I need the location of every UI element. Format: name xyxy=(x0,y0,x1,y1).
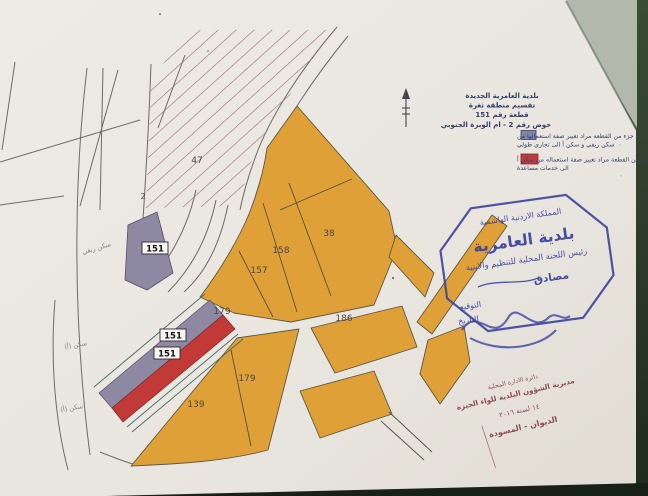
legend-item-1-line-2: سكن ريفي و سكن أ الى تجاري طولي xyxy=(517,140,614,149)
map-sheet-svg: 47 2 157 158 38 179 186 179 139 151 151 … xyxy=(0,0,648,496)
legend-item-1-line-1: جزء من القطعة مراد تغيير صفة استعمالها م… xyxy=(517,133,634,140)
photo-of-cadastral-map: 47 2 157 158 38 179 186 179 139 151 151 … xyxy=(0,0,648,496)
legend-item-2-line-2: الى خدمات مساعدة xyxy=(517,165,569,172)
title-line-2: تقسيم منطقة ثغرة xyxy=(469,102,536,110)
parcel-label-179b: 179 xyxy=(238,374,255,384)
boxed-label-151-gray-parcel: 151 xyxy=(146,245,164,255)
legend-item-2-line-1: جزء من القطعة مراد تغيير صفة استعماله من… xyxy=(517,155,648,164)
parcel-label-158: 158 xyxy=(272,246,289,256)
parcel-label-179a: 179 xyxy=(213,307,230,317)
parcel-label-186: 186 xyxy=(335,314,352,324)
parcel-label-38: 38 xyxy=(323,229,335,239)
parcel-label-139: 139 xyxy=(187,400,204,410)
title-line-1: بلدية العامرية الجديدة xyxy=(465,92,539,100)
title-line-4: حوض رقم 2 - ام الوبرة الجنوبي xyxy=(441,121,551,129)
title-line-3: قطعة رقم 151 xyxy=(475,111,529,119)
parcel-label-47: 47 xyxy=(191,156,202,166)
parcel-label-2: 2 xyxy=(141,192,146,201)
boxed-label-151-red-band: 151 xyxy=(158,350,176,360)
parcel-label-157: 157 xyxy=(250,266,267,276)
boxed-label-151-gray-band: 151 xyxy=(164,332,182,342)
